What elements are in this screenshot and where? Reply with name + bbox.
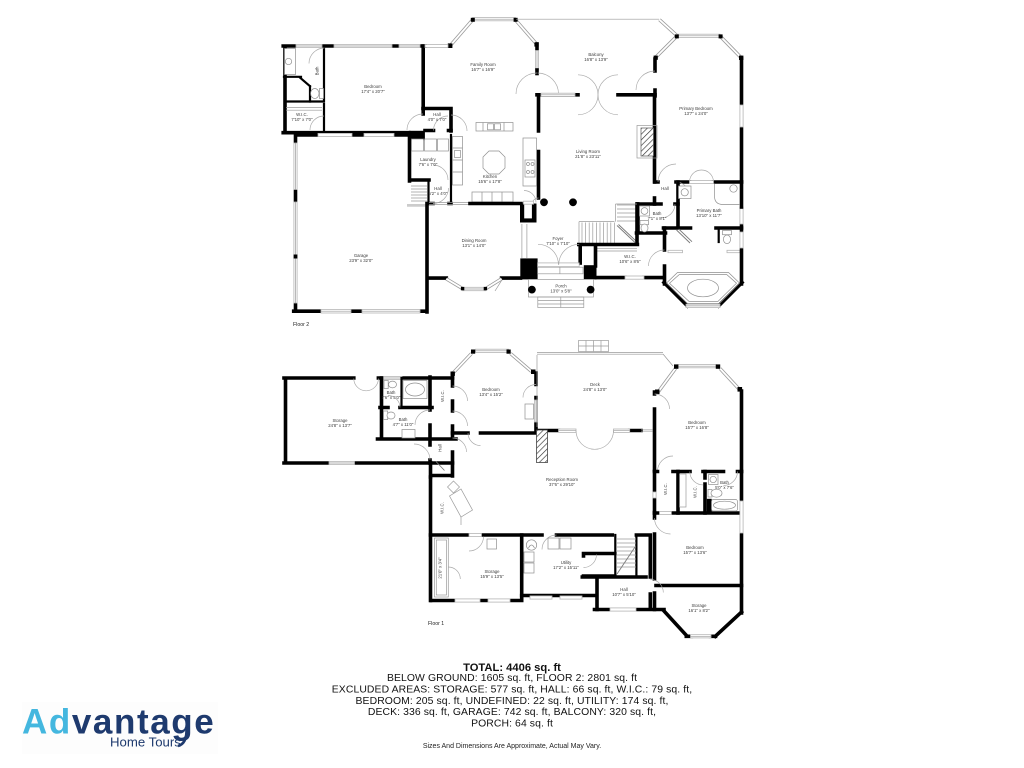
svg-text:7'1" x 8'1": 7'1" x 8'1": [648, 216, 667, 221]
svg-text:10'6" x 8'6": 10'6" x 8'6": [619, 259, 641, 264]
svg-text:16'1" x 8'2": 16'1" x 8'2": [688, 608, 710, 613]
svg-text:Sizes And Dimensions Are Appro: Sizes And Dimensions Are Approximate, Ac…: [423, 743, 601, 750]
svg-text:DECK: 336 sq. ft, GARAGE: 742: DECK: 336 sq. ft, GARAGE: 742 sq. ft, BA…: [368, 707, 656, 718]
svg-text:Home Tours: Home Tours: [110, 735, 181, 750]
svg-text:15'9" x 13'5": 15'9" x 13'5": [480, 574, 504, 579]
svg-text:13'1" x 14'0": 13'1" x 14'0": [462, 243, 486, 248]
svg-text:37'6" x 29'10": 37'6" x 29'10": [549, 482, 575, 487]
svg-text:7'6" x 7'0": 7'6" x 7'0": [419, 162, 438, 167]
svg-text:13'7" x 24'0": 13'7" x 24'0": [684, 111, 708, 116]
svg-text:5'2" x 4'0": 5'2" x 4'0": [429, 191, 448, 196]
svg-text:10'7" x 5'10": 10'7" x 5'10": [612, 592, 636, 597]
svg-text:Floor 2: Floor 2: [293, 322, 309, 328]
svg-text:15'7" x 13'6": 15'7" x 13'6": [683, 550, 707, 555]
svg-text:23'9" x 32'0": 23'9" x 32'0": [349, 258, 373, 263]
svg-text:BELOW GROUND: 1605 sq. ft, FLO: BELOW GROUND: 1605 sq. ft, FLOOR 2: 2801…: [387, 673, 637, 684]
svg-text:21'8" x 23'11": 21'8" x 23'11": [575, 154, 601, 159]
svg-text:15'6" x 17'8": 15'6" x 17'8": [478, 179, 502, 184]
svg-text:21'0" x 3'4": 21'0" x 3'4": [438, 557, 443, 579]
svg-text:W.I.C.: W.I.C.: [440, 502, 445, 514]
svg-text:7'10" x 7'0": 7'10" x 7'0": [291, 117, 313, 122]
svg-text:Hall: Hall: [661, 186, 668, 191]
svg-text:PORCH: 64 sq. ft: PORCH: 64 sq. ft: [471, 719, 553, 730]
svg-text:13'0" x 5'8": 13'0" x 5'8": [550, 289, 572, 294]
svg-text:W.I.C.: W.I.C.: [663, 483, 668, 495]
svg-text:4'7" x 11'0": 4'7" x 11'0": [393, 422, 414, 427]
svg-text:Bath: Bath: [315, 66, 320, 75]
svg-text:16'8" x 13'9": 16'8" x 13'9": [584, 57, 608, 62]
svg-text:BEDROOM: 205 sq. ft, UNDEFINED: BEDROOM: 205 sq. ft, UNDEFINED: 22 sq. f…: [356, 696, 669, 707]
svg-text:EXCLUDED AREAS: STORAGE: 577 s: EXCLUDED AREAS: STORAGE: 577 sq. ft, HAL…: [332, 684, 692, 695]
svg-text:13'10" x 11'7": 13'10" x 11'7": [696, 213, 722, 218]
svg-text:17'4" x 20'7": 17'4" x 20'7": [361, 89, 385, 94]
svg-text:Floor 1: Floor 1: [428, 621, 444, 627]
svg-text:7'10" x 7'10": 7'10" x 7'10": [546, 241, 570, 246]
svg-text:24'8" x 13'7": 24'8" x 13'7": [328, 423, 352, 428]
svg-text:W.I.C.: W.I.C.: [693, 486, 698, 498]
svg-text:Hall: Hall: [438, 444, 443, 451]
svg-text:13'4" x 15'2": 13'4" x 15'2": [479, 392, 503, 397]
svg-text:16'7" x 16'9": 16'7" x 16'9": [471, 67, 495, 72]
svg-text:17'2" x 15'11": 17'2" x 15'11": [553, 565, 579, 570]
svg-text:24'8" x 13'0": 24'8" x 13'0": [583, 387, 607, 392]
svg-text:15'7" x 16'8": 15'7" x 16'8": [685, 425, 709, 430]
svg-text:W.I.C.: W.I.C.: [440, 390, 445, 402]
svg-text:4'0" x 7'0": 4'0" x 7'0": [428, 117, 447, 122]
